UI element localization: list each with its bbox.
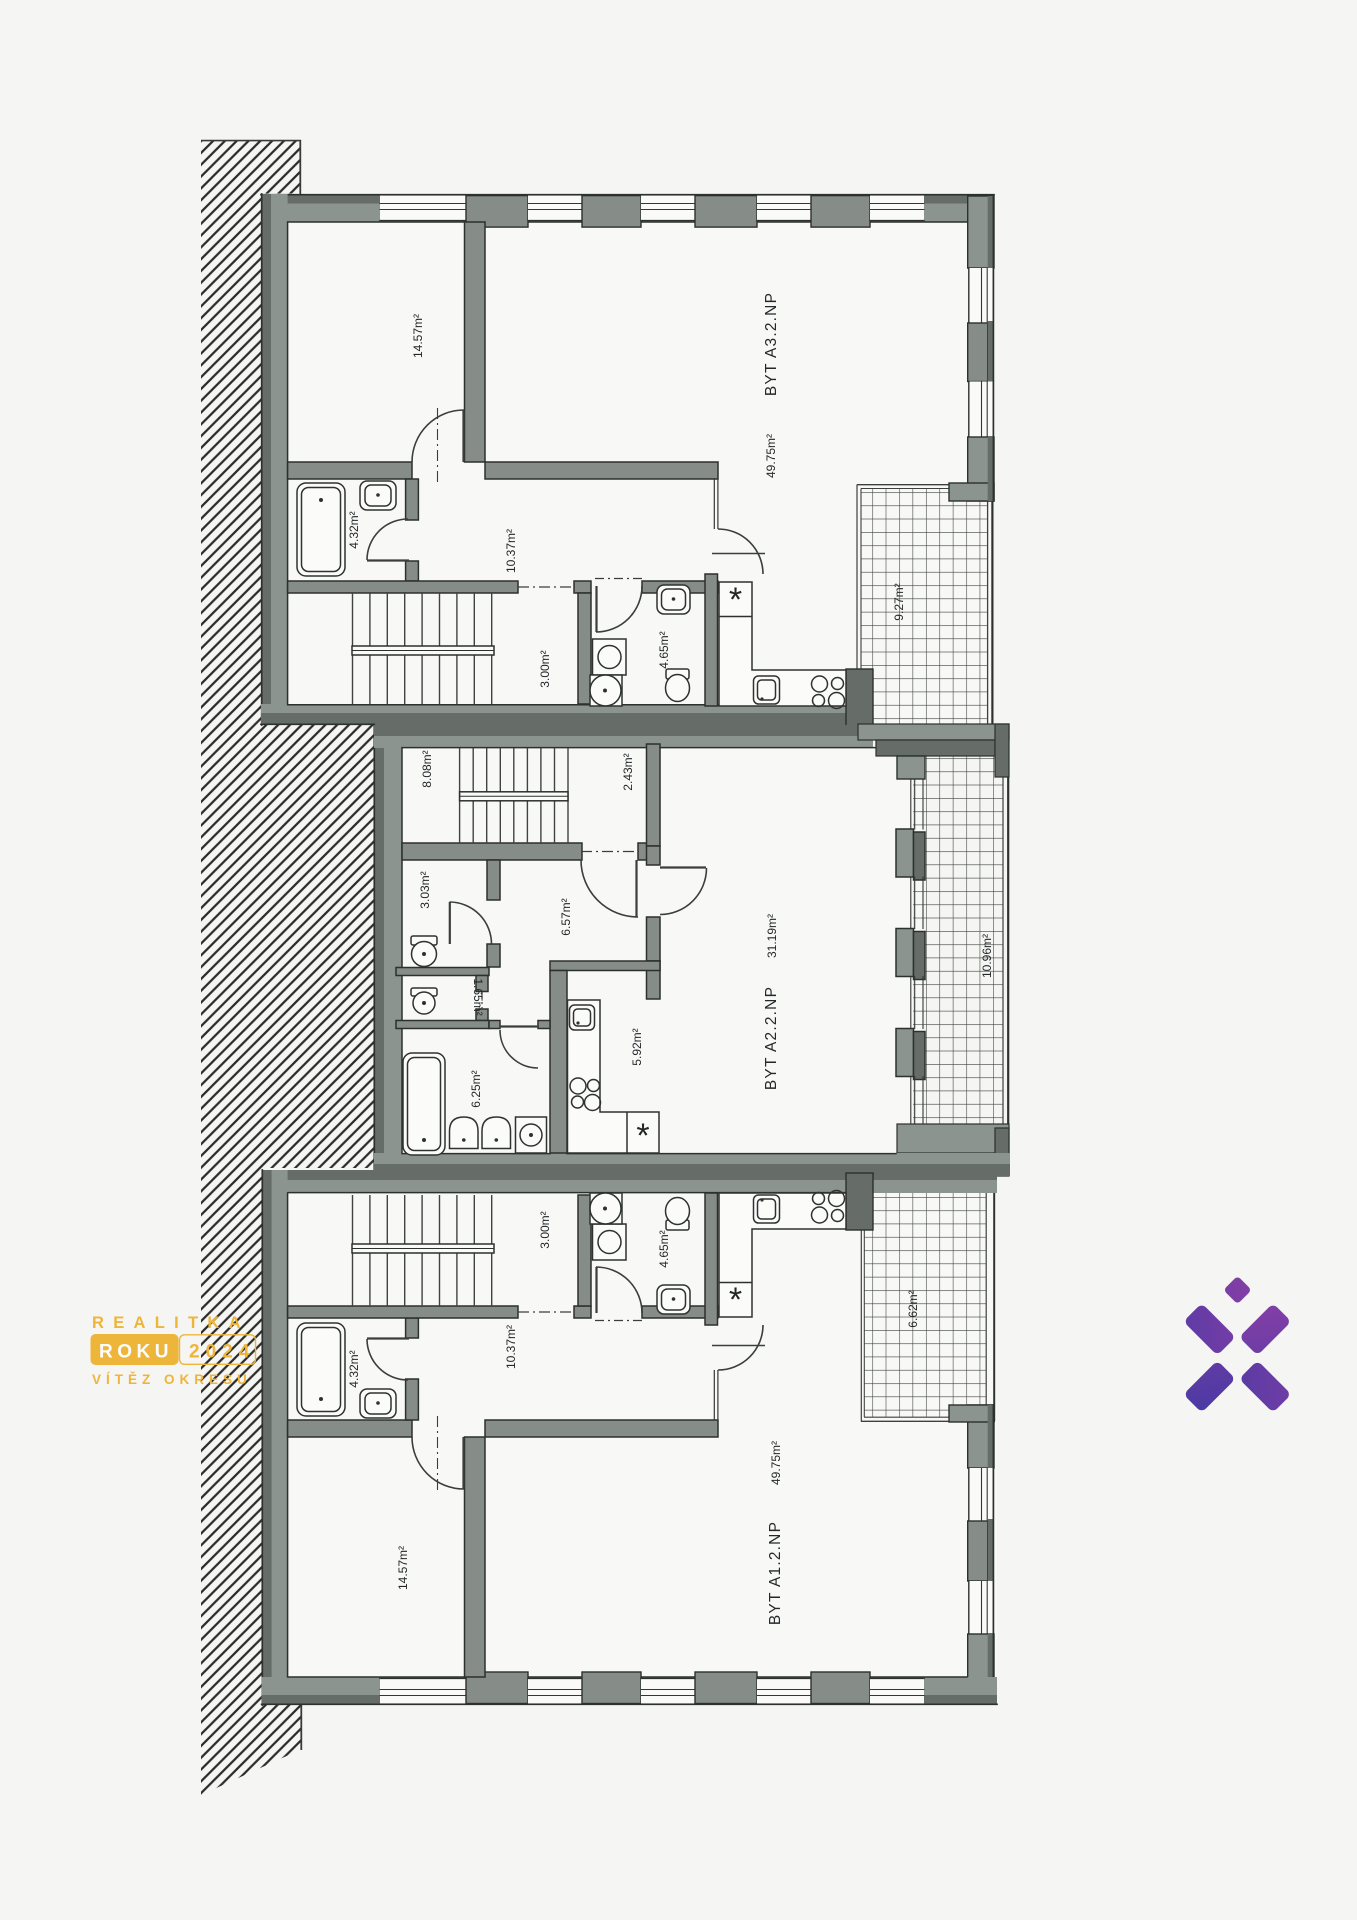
svg-text:BYT A3.2.NP: BYT A3.2.NP xyxy=(763,292,780,396)
svg-text:6.62m²: 6.62m² xyxy=(906,1290,920,1327)
svg-text:10.37m²: 10.37m² xyxy=(504,529,518,573)
svg-text:6.57m²: 6.57m² xyxy=(559,898,573,935)
svg-text:6.25m²: 6.25m² xyxy=(469,1070,483,1107)
svg-text:4.65m²: 4.65m² xyxy=(657,1230,671,1267)
svg-text:3.00m²: 3.00m² xyxy=(538,650,552,687)
svg-text:VÍTĚZ OKRESU: VÍTĚZ OKRESU xyxy=(92,1372,252,1387)
svg-text:2024: 2024 xyxy=(189,1342,255,1363)
svg-text:31.19m²: 31.19m² xyxy=(765,914,779,958)
svg-text:1.65m²: 1.65m² xyxy=(471,978,485,1015)
svg-text:14.57m²: 14.57m² xyxy=(396,1546,410,1590)
svg-text:10.37m²: 10.37m² xyxy=(504,1325,518,1369)
svg-text:49.75m²: 49.75m² xyxy=(769,1441,783,1485)
svg-text:10.96m²: 10.96m² xyxy=(980,934,994,978)
svg-text:ROKU: ROKU xyxy=(99,1342,173,1363)
svg-text:5.92m²: 5.92m² xyxy=(630,1028,644,1065)
svg-text:BYT A1.2.NP: BYT A1.2.NP xyxy=(767,1521,784,1625)
svg-text:*: * xyxy=(636,1117,649,1155)
svg-text:2.43m²: 2.43m² xyxy=(621,753,635,790)
svg-text:49.75m²: 49.75m² xyxy=(764,434,778,478)
svg-text:8.08m²: 8.08m² xyxy=(420,750,434,787)
svg-text:4.32m²: 4.32m² xyxy=(347,511,361,548)
svg-text:BYT A2.2.NP: BYT A2.2.NP xyxy=(763,986,780,1090)
svg-text:4.32m²: 4.32m² xyxy=(347,1350,361,1387)
svg-text:*: * xyxy=(729,581,742,619)
svg-text:14.57m²: 14.57m² xyxy=(411,314,425,358)
svg-text:9.27m²: 9.27m² xyxy=(892,583,906,620)
svg-text:*: * xyxy=(729,1281,742,1319)
svg-text:3.00m²: 3.00m² xyxy=(538,1211,552,1248)
svg-text:4.65m²: 4.65m² xyxy=(657,631,671,668)
svg-text:3.03m²: 3.03m² xyxy=(418,871,432,908)
svg-text:REALITKA: REALITKA xyxy=(92,1314,250,1332)
